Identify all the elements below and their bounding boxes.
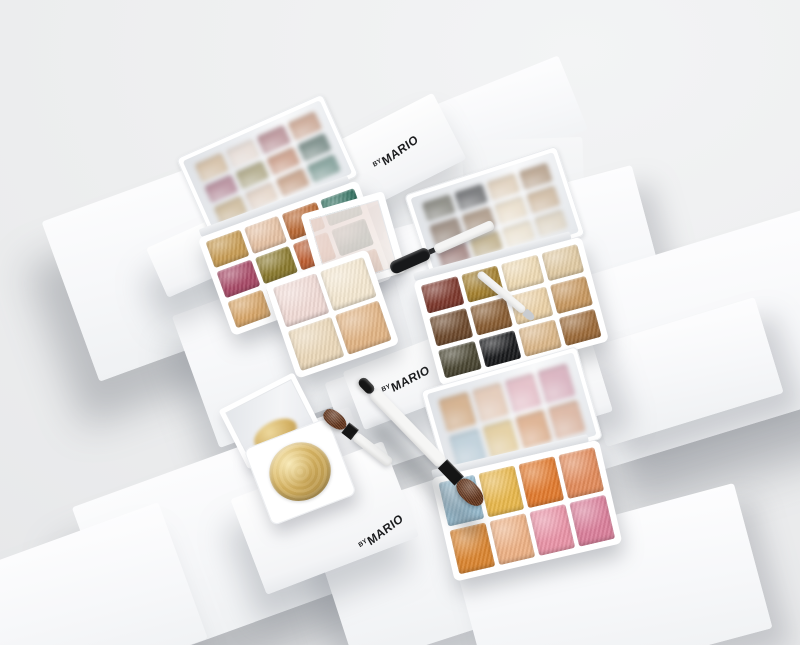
eyeshadow-swatch bbox=[558, 447, 604, 499]
product-photo-scene: BYMARIO BYMARIO BYMARIO BYMARIO bbox=[0, 0, 800, 645]
eyeshadow-swatch bbox=[478, 465, 524, 517]
eyeshadow-swatch bbox=[549, 276, 593, 314]
eyeshadow-swatch bbox=[489, 513, 535, 565]
eyeshadow-swatch bbox=[420, 276, 464, 314]
eyeshadow-swatch bbox=[471, 382, 509, 422]
gold-shadow-pan bbox=[261, 434, 340, 510]
eyeshadow-swatch bbox=[541, 244, 585, 282]
brand-label: BYMARIO bbox=[371, 132, 420, 174]
eyeshadow-swatch bbox=[478, 330, 522, 368]
brand-label: BYMARIO bbox=[357, 511, 406, 554]
eyeshadow-swatch bbox=[469, 298, 513, 336]
eyeshadow-swatch bbox=[287, 317, 344, 372]
eyeshadow-swatch bbox=[335, 300, 392, 355]
eyeshadow-swatch bbox=[438, 392, 476, 432]
eyeshadow-swatch bbox=[501, 255, 545, 293]
eyeshadow-swatch bbox=[529, 504, 575, 556]
eyeshadow-swatch bbox=[504, 373, 542, 413]
eyeshadow-swatch bbox=[518, 456, 564, 508]
eyeshadow-swatch bbox=[537, 363, 575, 403]
eyeshadow-swatch bbox=[429, 308, 473, 346]
eyeshadow-swatch bbox=[569, 495, 615, 547]
eyeshadow-swatch bbox=[558, 308, 602, 346]
eyeshadow-swatch bbox=[548, 399, 586, 439]
